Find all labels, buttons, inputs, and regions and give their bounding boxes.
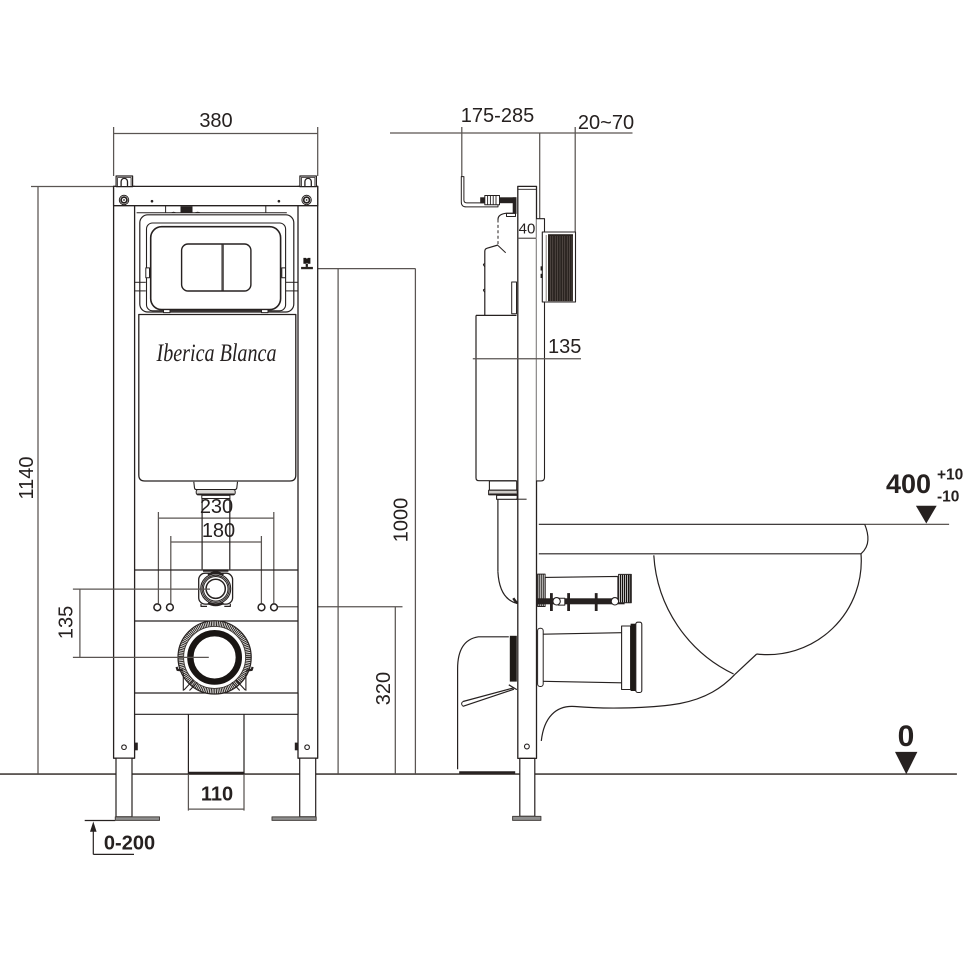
svg-text:230: 230 [200,496,233,518]
svg-text:110: 110 [201,784,233,806]
svg-text:0-200: 0-200 [104,833,155,855]
svg-text:175-285: 175-285 [461,105,534,127]
svg-text:-10: -10 [937,489,959,506]
svg-text:1000: 1000 [391,498,413,543]
svg-text:135: 135 [548,336,581,358]
svg-text:380: 380 [199,110,232,132]
svg-text:400: 400 [886,469,931,499]
svg-text:1140: 1140 [16,456,38,499]
svg-text:20~70: 20~70 [578,112,634,134]
svg-text:Iberica Blanca: Iberica Blanca [156,340,277,367]
svg-text:40: 40 [519,221,536,238]
svg-text:+10: +10 [937,467,963,484]
svg-text:0: 0 [898,720,915,753]
svg-text:135: 135 [56,606,78,639]
svg-text:320: 320 [373,672,395,705]
